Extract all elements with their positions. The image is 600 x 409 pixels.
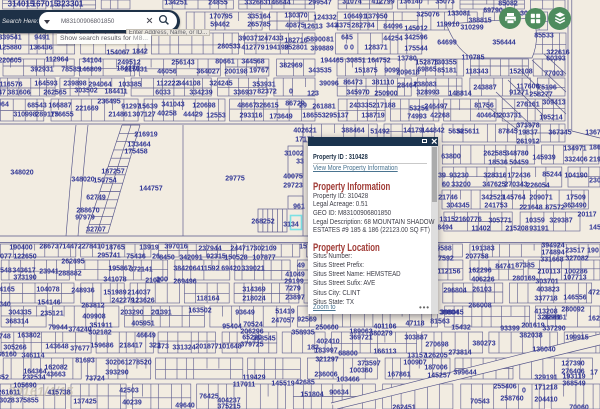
svg-text:154146: 154146 — [37, 300, 60, 307]
svg-text:107713: 107713 — [563, 275, 586, 282]
svg-text:381110: 381110 — [372, 80, 395, 87]
svg-text:219: 219 — [589, 157, 600, 164]
svg-text:404641: 404641 — [476, 113, 499, 120]
svg-text:104078: 104078 — [36, 287, 59, 294]
svg-text:262695: 262695 — [61, 259, 84, 266]
svg-text:12553: 12553 — [206, 113, 226, 120]
svg-text:270698: 270698 — [425, 342, 448, 349]
svg-text:406226: 406226 — [471, 277, 494, 284]
svg-text:81756: 81756 — [474, 103, 494, 110]
svg-text:4375: 4375 — [335, 23, 351, 30]
svg-text:77003: 77003 — [544, 71, 564, 78]
svg-text:170795: 170795 — [209, 14, 232, 21]
svg-text:210113: 210113 — [538, 269, 561, 276]
svg-text:403823: 403823 — [536, 287, 559, 294]
svg-text:97979: 97979 — [75, 215, 95, 222]
svg-text:182716: 182716 — [284, 38, 307, 45]
svg-text:119429: 119429 — [243, 375, 266, 382]
svg-text:92315: 92315 — [206, 254, 226, 261]
svg-text:2548: 2548 — [0, 268, 12, 275]
svg-text:329191: 329191 — [534, 375, 557, 382]
svg-text:144757: 144757 — [139, 186, 162, 193]
svg-text:68543: 68543 — [27, 103, 47, 110]
svg-text:133081: 133081 — [447, 11, 470, 18]
svg-text:329861: 329861 — [543, 315, 566, 322]
svg-text:70543: 70543 — [470, 399, 490, 406]
svg-text:373: 373 — [157, 344, 169, 351]
svg-text:183997: 183997 — [314, 348, 337, 355]
svg-text:203731: 203731 — [498, 113, 521, 120]
svg-text:381606: 381606 — [7, 90, 30, 97]
svg-text:332406: 332406 — [564, 157, 587, 164]
svg-text:91271: 91271 — [509, 90, 529, 97]
svg-text:44254: 44254 — [383, 36, 403, 43]
svg-text:0: 0 — [522, 388, 526, 395]
svg-text:51419: 51419 — [275, 309, 295, 316]
svg-text:190: 190 — [587, 248, 599, 255]
svg-text:344568: 344568 — [241, 59, 264, 66]
svg-text:255406: 255406 — [493, 384, 516, 391]
svg-text:402410: 402410 — [316, 339, 339, 346]
svg-text:86473: 86473 — [343, 80, 363, 87]
svg-text:280092: 280092 — [561, 307, 584, 314]
svg-text:124332: 124332 — [313, 15, 336, 22]
svg-text:144722: 144722 — [62, 244, 85, 251]
svg-text:6033: 6033 — [155, 90, 171, 97]
svg-text:415738: 415738 — [47, 390, 70, 397]
svg-text:33: 33 — [296, 159, 304, 166]
svg-text:356444: 356444 — [492, 40, 515, 47]
svg-text:388464: 388464 — [341, 128, 364, 135]
svg-text:250900: 250900 — [374, 91, 397, 98]
svg-text:326615: 326615 — [255, 103, 278, 110]
svg-text:40075: 40075 — [283, 174, 303, 181]
svg-text:93191: 93191 — [529, 226, 549, 233]
svg-text:39096: 39096 — [319, 81, 339, 88]
svg-text:201619: 201619 — [521, 323, 544, 330]
svg-text:19767: 19767 — [249, 68, 269, 75]
svg-text:412799: 412799 — [371, 0, 394, 6]
svg-text:244717: 244717 — [230, 246, 253, 253]
svg-text:26103: 26103 — [472, 287, 492, 294]
svg-text:344108: 344108 — [177, 81, 200, 88]
svg-text:209618: 209618 — [396, 70, 419, 77]
svg-text:303701: 303701 — [535, 279, 558, 286]
svg-text:107877: 107877 — [252, 255, 275, 262]
svg-text:105214: 105214 — [539, 115, 562, 122]
svg-text:186553: 186553 — [302, 113, 325, 120]
svg-text:85244: 85244 — [542, 172, 562, 179]
svg-text:154067: 154067 — [106, 50, 129, 57]
svg-text:331668: 331668 — [540, 257, 563, 264]
svg-text:187006: 187006 — [424, 365, 447, 372]
svg-text:146809: 146809 — [78, 67, 101, 74]
svg-text:368314: 368314 — [5, 319, 28, 326]
svg-text:342091: 342091 — [179, 255, 202, 262]
svg-text:310299: 310299 — [460, 25, 483, 32]
svg-text:3134: 3134 — [283, 222, 299, 229]
svg-text:236495: 236495 — [97, 99, 120, 106]
svg-text:69865: 69865 — [417, 67, 437, 74]
svg-text:852: 852 — [0, 375, 9, 382]
svg-text:134251: 134251 — [164, 0, 187, 7]
svg-text:269496: 269496 — [173, 279, 196, 286]
svg-text:405951: 405951 — [131, 321, 154, 328]
svg-text:379725: 379725 — [240, 342, 263, 349]
svg-text:314369: 314369 — [242, 287, 265, 294]
svg-text:305771: 305771 — [488, 218, 511, 225]
svg-text:93649: 93649 — [235, 310, 255, 317]
svg-text:37677: 37677 — [70, 346, 90, 353]
svg-text:143648: 143648 — [45, 344, 68, 351]
svg-text:243335: 243335 — [349, 103, 372, 110]
svg-text:104190: 104190 — [564, 173, 587, 180]
svg-text:288882: 288882 — [58, 271, 81, 278]
svg-text:200198: 200198 — [224, 69, 247, 76]
svg-text:14179: 14179 — [403, 128, 423, 135]
svg-text:138719: 138719 — [361, 113, 384, 120]
svg-text:122650: 122650 — [13, 254, 36, 261]
svg-text:17: 17 — [590, 370, 598, 377]
svg-text:348020: 348020 — [10, 170, 33, 177]
svg-text:150528: 150528 — [224, 255, 247, 262]
svg-text:82372: 82372 — [257, 89, 277, 96]
svg-text:339541: 339541 — [0, 35, 22, 42]
svg-text:270343: 270343 — [504, 182, 527, 189]
svg-text:252801: 252801 — [284, 45, 307, 52]
svg-text:262565: 262565 — [43, 90, 66, 97]
svg-text:49: 49 — [297, 263, 305, 270]
svg-text:70524: 70524 — [243, 322, 263, 329]
svg-text:258277: 258277 — [529, 92, 552, 99]
svg-text:195867: 195867 — [108, 266, 131, 273]
svg-text:11402: 11402 — [471, 226, 490, 233]
svg-text:148814: 148814 — [448, 91, 471, 98]
svg-text:191383: 191383 — [471, 246, 494, 253]
svg-text:302109: 302109 — [253, 246, 276, 253]
svg-text:216919: 216919 — [134, 132, 157, 139]
svg-text:118343: 118343 — [466, 69, 489, 76]
svg-text:40258: 40258 — [157, 111, 177, 118]
svg-text:261611: 261611 — [0, 390, 21, 397]
svg-text:145012: 145012 — [404, 26, 427, 33]
svg-text:064: 064 — [0, 102, 9, 109]
svg-text:309413: 309413 — [542, 100, 565, 107]
svg-text:51492: 51492 — [370, 129, 390, 136]
svg-text:307127: 307127 — [132, 112, 155, 119]
svg-text:76425: 76425 — [199, 394, 219, 401]
svg-text:133464: 133464 — [127, 142, 150, 149]
svg-text:327082: 327082 — [565, 256, 588, 263]
svg-text:23941: 23941 — [39, 269, 59, 276]
svg-text:226054: 226054 — [526, 183, 549, 190]
svg-text:263812: 263812 — [81, 303, 104, 310]
svg-text:145: 145 — [589, 225, 600, 232]
svg-text:144842: 144842 — [421, 128, 444, 135]
svg-text:1842: 1842 — [132, 49, 148, 56]
svg-text:0: 0 — [289, 89, 293, 96]
svg-text:31002: 31002 — [284, 151, 304, 158]
svg-text:250600: 250600 — [315, 325, 338, 332]
svg-text:63800: 63800 — [441, 154, 461, 161]
svg-text:342523: 342523 — [481, 195, 504, 202]
svg-text:346114: 346114 — [22, 353, 45, 360]
svg-text:95404: 95404 — [222, 324, 242, 331]
svg-text:73724: 73724 — [85, 376, 105, 383]
svg-text:39: 39 — [438, 173, 446, 180]
svg-text:19837: 19837 — [518, 130, 538, 137]
svg-text:324245: 324245 — [209, 81, 232, 88]
svg-text:60776: 60776 — [462, 217, 482, 224]
svg-text:961: 961 — [293, 204, 305, 211]
svg-text:74993: 74993 — [407, 114, 427, 121]
svg-text:367345: 367345 — [548, 130, 571, 137]
svg-text:145257: 145257 — [427, 373, 450, 380]
svg-text:321297: 321297 — [315, 357, 338, 364]
svg-text:220605: 220605 — [0, 58, 22, 65]
svg-text:2077: 2077 — [0, 254, 12, 261]
svg-text:173649: 173649 — [269, 114, 292, 121]
svg-text:29: 29 — [299, 103, 307, 110]
svg-text:119910: 119910 — [437, 22, 460, 29]
svg-text:86160: 86160 — [0, 352, 17, 359]
svg-text:472: 472 — [588, 290, 600, 297]
svg-text:247057: 247057 — [271, 318, 294, 325]
svg-text:3748: 3748 — [0, 334, 11, 341]
svg-text:375215: 375215 — [217, 404, 240, 409]
svg-text:145939: 145939 — [532, 155, 555, 162]
svg-text:33200: 33200 — [451, 182, 471, 189]
svg-text:394924: 394924 — [541, 243, 564, 250]
svg-text:137425: 137425 — [73, 399, 96, 406]
svg-text:166113: 166113 — [374, 349, 397, 356]
svg-text:266008: 266008 — [468, 303, 491, 310]
svg-text:347625: 347625 — [482, 182, 505, 189]
svg-text:203290: 203290 — [120, 310, 143, 317]
svg-text:12613: 12613 — [303, 24, 323, 31]
svg-text:49640: 49640 — [175, 403, 195, 409]
svg-text:81563: 81563 — [430, 319, 450, 326]
svg-text:345970: 345970 — [346, 90, 369, 97]
svg-text:167861: 167861 — [387, 372, 410, 379]
svg-text:218417: 218417 — [119, 343, 142, 350]
svg-text:164593: 164593 — [34, 81, 57, 88]
svg-text:13780: 13780 — [397, 56, 417, 63]
svg-text:218024: 218024 — [242, 296, 265, 303]
svg-text:368549: 368549 — [562, 381, 585, 388]
svg-text:299547: 299547 — [308, 0, 331, 7]
svg-text:295137: 295137 — [325, 113, 348, 120]
svg-text:0 0: 0 0 — [344, 45, 354, 52]
svg-text:221648: 221648 — [519, 205, 542, 212]
svg-text:3028: 3028 — [0, 398, 15, 405]
svg-text:48667: 48667 — [237, 103, 257, 110]
svg-text:42503: 42503 — [119, 388, 139, 395]
svg-text:353931: 353931 — [252, 82, 275, 89]
svg-text:120698: 120698 — [192, 103, 215, 110]
svg-text:341078: 341078 — [103, 277, 126, 284]
svg-text:136140: 136140 — [399, 0, 422, 6]
svg-text:46056: 46056 — [157, 69, 177, 76]
svg-text:363490: 363490 — [563, 203, 586, 210]
svg-text:127390: 127390 — [561, 361, 584, 368]
svg-text:175544: 175544 — [404, 46, 427, 53]
svg-text:103466: 103466 — [336, 377, 359, 384]
svg-text:40875: 40875 — [285, 23, 305, 30]
svg-text:214861: 214861 — [108, 112, 131, 119]
svg-text:335164: 335164 — [247, 14, 270, 21]
svg-text:17509: 17509 — [566, 195, 586, 202]
svg-text:217188: 217188 — [372, 103, 395, 110]
svg-text:136436: 136436 — [29, 45, 52, 52]
svg-text:323301: 323301 — [57, 0, 84, 9]
svg-text:84741: 84741 — [495, 264, 515, 271]
svg-text:21746: 21746 — [438, 195, 458, 202]
svg-text:380279: 380279 — [369, 331, 392, 338]
svg-text:296804: 296804 — [443, 288, 466, 295]
svg-text:85181: 85181 — [437, 68, 457, 75]
svg-text:238083: 238083 — [413, 82, 436, 89]
svg-text:331324: 331324 — [172, 345, 195, 352]
svg-text:118164: 118164 — [197, 296, 220, 303]
svg-text:392931: 392931 — [30, 67, 53, 74]
svg-text:343617: 343617 — [12, 268, 35, 275]
svg-text:150754: 150754 — [93, 178, 116, 185]
svg-text:645: 645 — [341, 35, 353, 42]
svg-text:29723: 29723 — [283, 183, 303, 190]
svg-text:209071: 209071 — [529, 195, 552, 202]
svg-text:328993: 328993 — [416, 90, 439, 97]
svg-text:126205: 126205 — [424, 353, 447, 360]
svg-text:42268: 42268 — [430, 113, 450, 120]
svg-text:130355: 130355 — [433, 60, 456, 67]
svg-text:288670: 288670 — [76, 208, 99, 215]
svg-text:146644: 146644 — [267, 0, 290, 7]
svg-text:364027: 364027 — [196, 69, 219, 76]
svg-text:265785: 265785 — [247, 22, 270, 29]
svg-text:382038: 382038 — [519, 333, 542, 340]
svg-text:84096: 84096 — [383, 24, 403, 31]
svg-text:151989: 151989 — [103, 290, 126, 297]
svg-text:190400: 190400 — [9, 245, 32, 252]
svg-text:256143: 256143 — [171, 60, 194, 67]
svg-text:393290: 393290 — [105, 370, 128, 377]
svg-text:186: 186 — [589, 145, 600, 152]
svg-text:92569: 92569 — [297, 317, 317, 324]
svg-text:100360: 100360 — [349, 368, 372, 375]
svg-text:184411: 184411 — [105, 89, 128, 96]
svg-text:31074: 31074 — [342, 0, 362, 6]
svg-text:230: 230 — [589, 178, 600, 185]
svg-text:106491: 106491 — [343, 14, 366, 21]
svg-text:15: 15 — [299, 244, 307, 251]
svg-text:41049: 41049 — [285, 272, 305, 279]
svg-text:93399: 93399 — [500, 326, 520, 333]
svg-text:293116: 293116 — [240, 113, 263, 120]
svg-text:351911: 351911 — [90, 323, 113, 330]
svg-text:401106: 401106 — [374, 324, 397, 331]
svg-text:60393: 60393 — [546, 56, 566, 63]
svg-text:336937: 336937 — [233, 90, 256, 97]
svg-text:310998: 310998 — [13, 112, 36, 119]
svg-text:380273: 380273 — [472, 341, 495, 348]
svg-text:176655: 176655 — [50, 112, 73, 119]
svg-text:525611: 525611 — [457, 129, 480, 136]
svg-text:280169: 280169 — [512, 276, 535, 283]
svg-text:44429: 44429 — [183, 112, 203, 119]
svg-text:166887: 166887 — [48, 103, 71, 110]
svg-text:47: 47 — [0, 90, 6, 97]
svg-text:273814: 273814 — [448, 350, 471, 357]
svg-text:207758: 207758 — [465, 254, 488, 261]
svg-text:62749: 62749 — [86, 195, 106, 202]
svg-text:328316: 328316 — [483, 173, 506, 180]
svg-text:59462: 59462 — [210, 22, 230, 29]
svg-text:24855: 24855 — [208, 0, 228, 7]
svg-text:171218: 171218 — [534, 385, 557, 392]
svg-text:75196: 75196 — [537, 85, 557, 92]
svg-text:81693: 81693 — [75, 358, 95, 365]
svg-text:200: 200 — [156, 277, 168, 284]
svg-text:35073: 35073 — [435, 0, 455, 6]
svg-text:9588: 9588 — [436, 246, 452, 253]
svg-text:243887: 243887 — [473, 85, 496, 92]
svg-text:23897: 23897 — [285, 295, 305, 302]
svg-text:69420: 69420 — [221, 266, 241, 273]
svg-text:214037: 214037 — [127, 290, 150, 297]
svg-text:13919: 13919 — [139, 245, 159, 252]
svg-text:145519: 145519 — [271, 381, 294, 388]
svg-text:125880: 125880 — [0, 45, 22, 52]
svg-text:412779: 412779 — [241, 45, 264, 52]
svg-text:151804: 151804 — [300, 392, 323, 399]
svg-text:162296: 162296 — [468, 268, 491, 275]
svg-text:29199: 29199 — [284, 279, 304, 286]
svg-text:334239: 334239 — [189, 90, 212, 97]
svg-text:47118: 47118 — [405, 321, 424, 328]
svg-text:278520: 278520 — [128, 360, 151, 367]
svg-text:58900: 58900 — [306, 37, 326, 44]
svg-text:87385: 87385 — [515, 263, 535, 270]
svg-text:8340: 8340 — [0, 302, 11, 309]
svg-text:23517: 23517 — [565, 248, 585, 255]
svg-text:85533: 85533 — [534, 33, 554, 40]
svg-text:116576: 116576 — [0, 82, 23, 89]
svg-text:382969: 382969 — [279, 63, 302, 70]
svg-text:276161: 276161 — [516, 102, 539, 109]
svg-text:84165: 84165 — [0, 287, 15, 294]
svg-text:409908: 409908 — [82, 314, 105, 321]
svg-text:332663: 332663 — [244, 0, 267, 7]
svg-text:402621: 402621 — [293, 128, 316, 135]
svg-text:110785: 110785 — [462, 55, 485, 62]
svg-text:1367: 1367 — [585, 130, 600, 137]
svg-text:239898: 239898 — [63, 81, 86, 88]
svg-text:130370: 130370 — [284, 13, 307, 20]
svg-text:15432: 15432 — [451, 325, 471, 332]
svg-text:137950: 137950 — [364, 14, 387, 21]
svg-text:221669: 221669 — [75, 106, 98, 113]
svg-text:164752: 164752 — [367, 58, 390, 65]
svg-text:93230: 93230 — [449, 173, 469, 180]
svg-text:81: 81 — [326, 37, 334, 44]
svg-text:397016: 397016 — [164, 244, 187, 251]
svg-text:390371: 390371 — [238, 36, 261, 43]
svg-text:348780: 348780 — [505, 151, 528, 158]
svg-text:268252: 268252 — [251, 219, 274, 226]
svg-text:199915: 199915 — [565, 335, 588, 342]
svg-text:162: 162 — [588, 316, 600, 323]
